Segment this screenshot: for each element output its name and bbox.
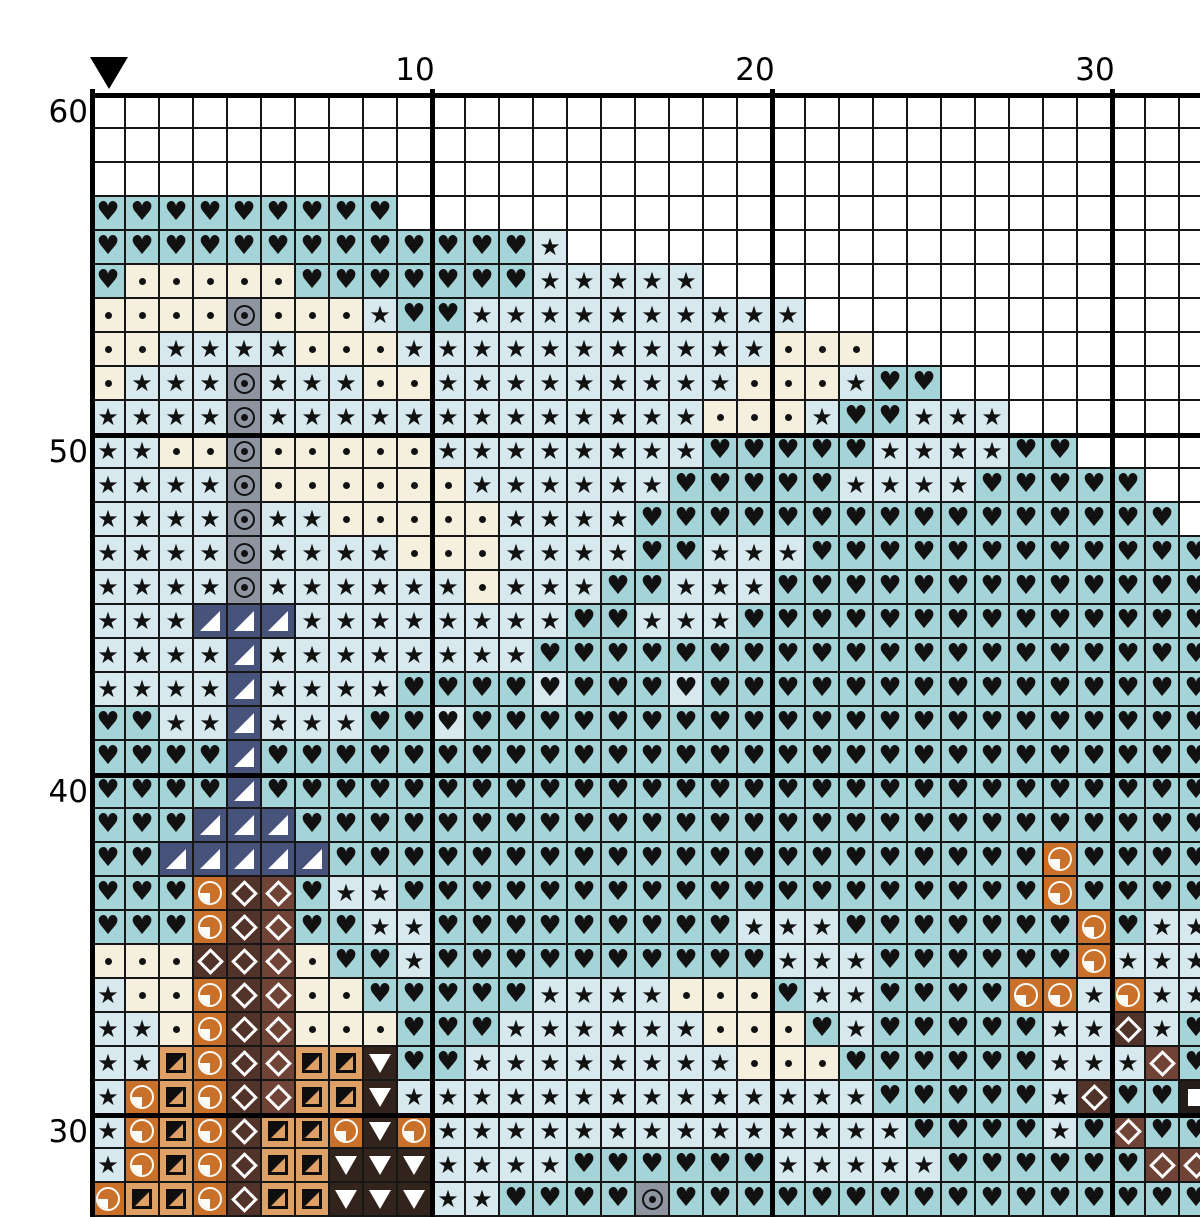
heart-icon: ♥ bbox=[436, 1046, 459, 1078]
stitch-cell bbox=[1146, 333, 1180, 367]
stitch-cell bbox=[636, 1183, 670, 1217]
stitch-cell: ♥ bbox=[806, 809, 840, 843]
stitch-cell: ♥ bbox=[330, 741, 364, 775]
stitch-cell: ♥ bbox=[874, 571, 908, 605]
dot-icon bbox=[751, 414, 758, 421]
heart-icon: ♥ bbox=[1014, 808, 1037, 840]
stitch-cell: ★ bbox=[330, 673, 364, 707]
stitch-cell: ★ bbox=[466, 1081, 500, 1115]
star-icon: ★ bbox=[1185, 911, 1200, 943]
star-icon: ★ bbox=[97, 537, 119, 569]
stitch-cell: ★ bbox=[432, 1081, 466, 1115]
star-icon: ★ bbox=[369, 571, 391, 603]
stitch-cell: ★ bbox=[92, 639, 126, 673]
stitch-cell: ♥ bbox=[228, 231, 262, 265]
stitch-cell: ♥ bbox=[840, 401, 874, 435]
stitch-cell: ♥ bbox=[806, 741, 840, 775]
diamond-icon bbox=[231, 1016, 258, 1043]
heart-icon: ♥ bbox=[980, 944, 1003, 976]
stitch-cell bbox=[874, 299, 908, 333]
stitch-cell: ★ bbox=[840, 469, 874, 503]
dot-icon bbox=[275, 448, 282, 455]
stitch-cell: ♥ bbox=[398, 741, 432, 775]
star-icon: ★ bbox=[437, 571, 459, 603]
heart-icon: ♥ bbox=[300, 876, 323, 908]
stitch-cell: ♥ bbox=[1044, 639, 1078, 673]
heart-icon: ♥ bbox=[96, 264, 119, 296]
star-icon: ★ bbox=[97, 673, 119, 705]
stitch-cell bbox=[228, 979, 262, 1013]
stitch-cell: ★ bbox=[1146, 979, 1180, 1013]
star-icon: ★ bbox=[131, 1013, 153, 1045]
heart-icon: ♥ bbox=[946, 672, 969, 704]
star-icon: ★ bbox=[505, 1081, 527, 1113]
quarter-circle-icon bbox=[1048, 881, 1072, 905]
heart-icon: ♥ bbox=[776, 604, 799, 636]
star-icon: ★ bbox=[607, 1047, 629, 1079]
star-icon: ★ bbox=[641, 469, 663, 501]
stitch-cell: ♥ bbox=[772, 435, 806, 469]
star-icon: ★ bbox=[437, 1081, 459, 1113]
stitch-cell: ♥ bbox=[772, 605, 806, 639]
heart-icon: ♥ bbox=[334, 944, 357, 976]
stitch-cell: ★ bbox=[602, 503, 636, 537]
stitch-cell bbox=[330, 1047, 364, 1081]
stitch-cell: ♥ bbox=[806, 503, 840, 537]
stitch-cell bbox=[670, 197, 704, 231]
heart-icon: ♥ bbox=[640, 502, 663, 534]
stitch-cell: ♥ bbox=[1010, 1149, 1044, 1183]
heart-icon: ♥ bbox=[606, 638, 629, 670]
half-square-icon bbox=[166, 1087, 186, 1107]
stitch-cell: ★ bbox=[636, 1013, 670, 1047]
star-icon: ★ bbox=[641, 1013, 663, 1045]
stitch-cell: ★ bbox=[738, 537, 772, 571]
stitch-cell: ♥ bbox=[908, 503, 942, 537]
star-icon: ★ bbox=[505, 503, 527, 535]
stitch-cell bbox=[1146, 129, 1180, 163]
stitch-cell: ♥ bbox=[908, 367, 942, 401]
stitch-cell bbox=[330, 95, 364, 129]
stitch-cell: ♥ bbox=[840, 639, 874, 673]
stitch-cell: ♥ bbox=[738, 1149, 772, 1183]
stitch-cell: ★ bbox=[364, 605, 398, 639]
stitch-cell bbox=[568, 95, 602, 129]
stitch-cell: ★ bbox=[364, 911, 398, 945]
row-label-30: 30 bbox=[30, 1115, 88, 1149]
stitch-cell: ♥ bbox=[602, 673, 636, 707]
heart-icon: ♥ bbox=[946, 910, 969, 942]
heart-icon: ♥ bbox=[708, 774, 731, 806]
stitch-cell: ♥ bbox=[976, 1183, 1010, 1217]
stitch-cell: ♥ bbox=[126, 809, 160, 843]
stitch-cell: ★ bbox=[840, 979, 874, 1013]
star-icon: ★ bbox=[131, 639, 153, 671]
half-triangle-icon bbox=[268, 815, 288, 835]
star-icon: ★ bbox=[505, 1149, 527, 1181]
stitch-cell: ★ bbox=[262, 401, 296, 435]
stitch-cell: ♥ bbox=[772, 707, 806, 741]
star-icon: ★ bbox=[675, 571, 697, 603]
stitch-cell: ★ bbox=[262, 639, 296, 673]
stitch-cell bbox=[806, 367, 840, 401]
half-square-icon bbox=[268, 1121, 288, 1141]
star-icon: ★ bbox=[1049, 1115, 1071, 1147]
stitch-cell bbox=[1010, 299, 1044, 333]
stitch-cell: ★ bbox=[874, 1149, 908, 1183]
stitch-cell: ♥ bbox=[976, 605, 1010, 639]
heart-icon: ♥ bbox=[1150, 876, 1173, 908]
stitch-cell bbox=[228, 401, 262, 435]
heart-icon: ♥ bbox=[470, 944, 493, 976]
stitch-cell: ♥ bbox=[772, 503, 806, 537]
stitch-cell bbox=[228, 809, 262, 843]
diamond-icon bbox=[231, 1084, 258, 1111]
heart-icon: ♥ bbox=[606, 944, 629, 976]
stitch-cell: ★ bbox=[160, 333, 194, 367]
heart-icon: ♥ bbox=[300, 808, 323, 840]
stitch-cell: ♥ bbox=[432, 265, 466, 299]
stitch-cell bbox=[194, 1149, 228, 1183]
stitch-cell: ♥ bbox=[738, 673, 772, 707]
stitch-cell: ★ bbox=[296, 605, 330, 639]
heart-icon: ♥ bbox=[844, 536, 867, 568]
heart-icon: ♥ bbox=[504, 230, 527, 262]
stitch-cell bbox=[126, 265, 160, 299]
stitch-cell: ♥ bbox=[874, 367, 908, 401]
dot-icon bbox=[819, 1060, 826, 1067]
stitch-cell bbox=[670, 231, 704, 265]
heart-icon: ♥ bbox=[708, 638, 731, 670]
heart-icon: ♥ bbox=[980, 1046, 1003, 1078]
heart-icon: ♥ bbox=[1014, 1182, 1037, 1214]
star-icon: ★ bbox=[267, 639, 289, 671]
heart-icon: ♥ bbox=[844, 638, 867, 670]
star-icon: ★ bbox=[777, 299, 799, 331]
star-icon: ★ bbox=[165, 639, 187, 671]
dot-icon bbox=[275, 482, 282, 489]
heart-icon: ♥ bbox=[1150, 1182, 1173, 1214]
stitch-cell: ♥ bbox=[432, 707, 466, 741]
stitch-cell bbox=[194, 843, 228, 877]
stitch-cell bbox=[262, 945, 296, 979]
stitch-cell: ★ bbox=[840, 1081, 874, 1115]
star-icon: ★ bbox=[573, 367, 595, 399]
dot-icon bbox=[105, 380, 112, 387]
stitch-cell: ♥ bbox=[602, 741, 636, 775]
stitch-cell bbox=[194, 265, 228, 299]
heart-icon: ♥ bbox=[96, 740, 119, 772]
stitch-cell bbox=[160, 1115, 194, 1149]
stitch-cell: ★ bbox=[92, 1013, 126, 1047]
stitch-cell: ♥ bbox=[772, 639, 806, 673]
heart-icon: ♥ bbox=[164, 740, 187, 772]
stitch-cell: ★ bbox=[602, 979, 636, 1013]
heart-icon: ♥ bbox=[1116, 502, 1139, 534]
dot-icon bbox=[479, 516, 486, 523]
star-icon: ★ bbox=[811, 1115, 833, 1147]
heart-icon: ♥ bbox=[980, 876, 1003, 908]
stitch-cell: ★ bbox=[602, 537, 636, 571]
star-icon: ★ bbox=[777, 1149, 799, 1181]
star-icon: ★ bbox=[811, 1149, 833, 1181]
stitch-cell: ★ bbox=[840, 1149, 874, 1183]
star-icon: ★ bbox=[165, 333, 187, 365]
stitch-cell bbox=[942, 197, 976, 231]
heart-icon: ♥ bbox=[436, 944, 459, 976]
star-icon: ★ bbox=[539, 1047, 561, 1079]
star-icon: ★ bbox=[607, 1081, 629, 1113]
stitch-cell: ♥ bbox=[602, 809, 636, 843]
star-icon: ★ bbox=[505, 1047, 527, 1079]
dot-icon bbox=[411, 550, 418, 557]
stitch-cell: ★ bbox=[160, 367, 194, 401]
heart-icon: ♥ bbox=[1048, 944, 1071, 976]
stitch-cell: ♥ bbox=[466, 1013, 500, 1047]
heart-icon: ♥ bbox=[640, 842, 663, 874]
stitch-cell: ★ bbox=[738, 911, 772, 945]
heart-icon: ♥ bbox=[708, 672, 731, 704]
stitch-cell: ♥ bbox=[602, 945, 636, 979]
stitch-cell: ★ bbox=[262, 673, 296, 707]
quarter-circle-icon bbox=[130, 1085, 154, 1109]
stitch-cell bbox=[636, 197, 670, 231]
stitch-cell bbox=[602, 163, 636, 197]
stitch-cell bbox=[806, 129, 840, 163]
stitch-cell bbox=[228, 129, 262, 163]
dot-icon bbox=[343, 346, 350, 353]
stitch-cell: ♥ bbox=[636, 911, 670, 945]
dot-icon bbox=[479, 584, 486, 591]
stitch-cell: ★ bbox=[364, 537, 398, 571]
diamond-icon bbox=[265, 914, 292, 941]
stitch-cell: ★ bbox=[92, 401, 126, 435]
dot-icon bbox=[751, 1026, 758, 1033]
star-icon: ★ bbox=[1117, 945, 1139, 977]
star-icon: ★ bbox=[573, 333, 595, 365]
star-icon: ★ bbox=[165, 469, 187, 501]
stitch-cell: ♥ bbox=[398, 809, 432, 843]
stitch-cell: ♥ bbox=[500, 265, 534, 299]
stitch-cell: ♥ bbox=[636, 945, 670, 979]
stitch-cell bbox=[296, 1047, 330, 1081]
stitch-cell: ♥ bbox=[976, 673, 1010, 707]
stitch-cell: ★ bbox=[126, 401, 160, 435]
heart-icon: ♥ bbox=[402, 706, 425, 738]
stitch-cell bbox=[92, 129, 126, 163]
stitch-cell: ♥ bbox=[1010, 741, 1044, 775]
stitch-cell: ♥ bbox=[636, 639, 670, 673]
stitch-cell bbox=[1044, 231, 1078, 265]
stitch-cell: ♥ bbox=[772, 1183, 806, 1217]
stitch-cell bbox=[1078, 401, 1112, 435]
heart-icon: ♥ bbox=[912, 1182, 935, 1214]
diamond-icon bbox=[231, 1118, 258, 1145]
stitch-cell: ♥ bbox=[1112, 469, 1146, 503]
stitch-cell: ★ bbox=[296, 571, 330, 605]
stitch-cell bbox=[772, 1047, 806, 1081]
heart-icon: ♥ bbox=[402, 1046, 425, 1078]
stitch-cell bbox=[398, 469, 432, 503]
stitch-cell: ♥ bbox=[330, 231, 364, 265]
heart-icon: ♥ bbox=[776, 468, 799, 500]
dot-icon bbox=[309, 312, 316, 319]
stitch-cell: ♥ bbox=[1044, 673, 1078, 707]
stitch-cell bbox=[228, 707, 262, 741]
stitch-cell bbox=[1112, 197, 1146, 231]
dot-icon bbox=[105, 958, 112, 965]
stitch-cell: ♥ bbox=[874, 775, 908, 809]
stitch-cell: ♥ bbox=[330, 197, 364, 231]
heart-icon: ♥ bbox=[946, 570, 969, 602]
star-icon: ★ bbox=[335, 877, 357, 909]
stitch-cell bbox=[1112, 1013, 1146, 1047]
heart-icon: ♥ bbox=[470, 808, 493, 840]
heart-icon: ♥ bbox=[436, 230, 459, 262]
star-icon: ★ bbox=[539, 333, 561, 365]
stitch-cell bbox=[908, 299, 942, 333]
star-icon: ★ bbox=[845, 1115, 867, 1147]
heart-icon: ♥ bbox=[742, 740, 765, 772]
star-icon: ★ bbox=[675, 299, 697, 331]
heart-icon: ♥ bbox=[436, 842, 459, 874]
star-icon: ★ bbox=[403, 571, 425, 603]
stitch-cell: ♥ bbox=[772, 979, 806, 1013]
heart-icon: ♥ bbox=[504, 1182, 527, 1214]
stitch-cell bbox=[738, 197, 772, 231]
stitch-cell: ♥ bbox=[772, 775, 806, 809]
stitch-cell bbox=[330, 299, 364, 333]
heart-icon: ♥ bbox=[878, 706, 901, 738]
stitch-cell: ★ bbox=[670, 367, 704, 401]
star-icon: ★ bbox=[879, 1149, 901, 1181]
stitch-cell bbox=[262, 877, 296, 911]
stitch-cell: ♥ bbox=[772, 809, 806, 843]
stitch-cell bbox=[296, 1149, 330, 1183]
stitch-cell: ♥ bbox=[704, 945, 738, 979]
stitch-cell: ★ bbox=[296, 401, 330, 435]
star-icon: ★ bbox=[539, 469, 561, 501]
stitch-cell: ♥ bbox=[398, 843, 432, 877]
stitch-cell bbox=[228, 265, 262, 299]
half-square-icon bbox=[302, 1189, 322, 1209]
stitch-cell: ♥ bbox=[194, 775, 228, 809]
quarter-circle-icon bbox=[130, 1119, 154, 1143]
heart-icon: ♥ bbox=[572, 1148, 595, 1180]
heart-icon: ♥ bbox=[164, 910, 187, 942]
stitch-cell bbox=[364, 1081, 398, 1115]
stitch-cell: ★ bbox=[330, 367, 364, 401]
stitch-cell: ♥ bbox=[126, 775, 160, 809]
stitch-cell: ★ bbox=[160, 605, 194, 639]
star-icon: ★ bbox=[845, 1013, 867, 1045]
dot-icon bbox=[445, 482, 452, 489]
star-icon: ★ bbox=[471, 605, 493, 637]
stitch-cell bbox=[806, 163, 840, 197]
stitch-cell bbox=[772, 231, 806, 265]
stitch-cell: ♥ bbox=[840, 673, 874, 707]
stitch-cell bbox=[1010, 265, 1044, 299]
stitch-cell: ★ bbox=[466, 639, 500, 673]
diamond-icon bbox=[265, 1084, 292, 1111]
heart-icon: ♥ bbox=[538, 706, 561, 738]
stitch-cell: ♥ bbox=[466, 775, 500, 809]
heart-icon: ♥ bbox=[674, 1182, 697, 1214]
star-icon: ★ bbox=[811, 1081, 833, 1113]
stitch-cell bbox=[398, 95, 432, 129]
heart-icon: ♥ bbox=[1048, 468, 1071, 500]
heart-icon: ♥ bbox=[1116, 910, 1139, 942]
heart-icon: ♥ bbox=[878, 1080, 901, 1112]
stitch-cell: ♥ bbox=[1010, 1115, 1044, 1149]
stitch-cell bbox=[568, 163, 602, 197]
stitch-cell bbox=[228, 741, 262, 775]
stitch-cell: ★ bbox=[568, 571, 602, 605]
half-square-icon bbox=[302, 1121, 322, 1141]
stitch-cell: ★ bbox=[738, 1115, 772, 1149]
stitch-cell: ♥ bbox=[806, 843, 840, 877]
dot-icon bbox=[785, 380, 792, 387]
stitch-cell: ★ bbox=[92, 979, 126, 1013]
stitch-cell: ♥ bbox=[126, 231, 160, 265]
stitch-cell: ♥ bbox=[568, 673, 602, 707]
stitch-cell: ♥ bbox=[1078, 707, 1112, 741]
stitch-cell bbox=[1112, 1115, 1146, 1149]
star-icon: ★ bbox=[641, 401, 663, 433]
stitch-cell: ♥ bbox=[466, 265, 500, 299]
circled-dot-icon bbox=[234, 577, 255, 598]
stitch-cell: ♥ bbox=[1044, 537, 1078, 571]
heart-icon: ♥ bbox=[436, 706, 459, 738]
stitch-cell: ♥ bbox=[534, 741, 568, 775]
heart-icon: ♥ bbox=[538, 774, 561, 806]
heart-icon: ♥ bbox=[878, 638, 901, 670]
heart-icon: ♥ bbox=[674, 536, 697, 568]
stitch-cell: ♥ bbox=[568, 707, 602, 741]
stitch-cell: ♥ bbox=[500, 231, 534, 265]
stitch-cell bbox=[874, 95, 908, 129]
stitch-cell: ★ bbox=[636, 979, 670, 1013]
heart-icon: ♥ bbox=[1150, 1114, 1173, 1146]
heart-icon: ♥ bbox=[1014, 706, 1037, 738]
heart-icon: ♥ bbox=[334, 740, 357, 772]
stitch-cell: ♥ bbox=[602, 1149, 636, 1183]
stitch-cell: ♥ bbox=[602, 877, 636, 911]
stitch-cell: ★ bbox=[500, 537, 534, 571]
stitch-cell bbox=[194, 911, 228, 945]
stitch-cell: ♥ bbox=[976, 469, 1010, 503]
stitch-cell bbox=[466, 197, 500, 231]
stitch-cell: ♥ bbox=[126, 707, 160, 741]
stitch-cell: ♥ bbox=[874, 1081, 908, 1115]
heart-icon: ♥ bbox=[640, 774, 663, 806]
stitch-cell bbox=[262, 469, 296, 503]
stitch-cell: ★ bbox=[92, 1115, 126, 1149]
stitch-cell: ♥ bbox=[976, 877, 1010, 911]
heart-icon: ♥ bbox=[1014, 536, 1037, 568]
stitch-cell: ★ bbox=[908, 435, 942, 469]
stitch-cell: ★ bbox=[568, 299, 602, 333]
heart-icon: ♥ bbox=[1048, 1182, 1071, 1214]
stitch-cell bbox=[840, 95, 874, 129]
stitch-cell: ♥ bbox=[1044, 707, 1078, 741]
stitch-cell: ♥ bbox=[840, 877, 874, 911]
stitch-cell: ♥ bbox=[976, 639, 1010, 673]
diamond-icon bbox=[265, 1016, 292, 1043]
stitch-cell: ♥ bbox=[840, 571, 874, 605]
stitch-cell: ♥ bbox=[874, 945, 908, 979]
stitch-cell bbox=[738, 231, 772, 265]
